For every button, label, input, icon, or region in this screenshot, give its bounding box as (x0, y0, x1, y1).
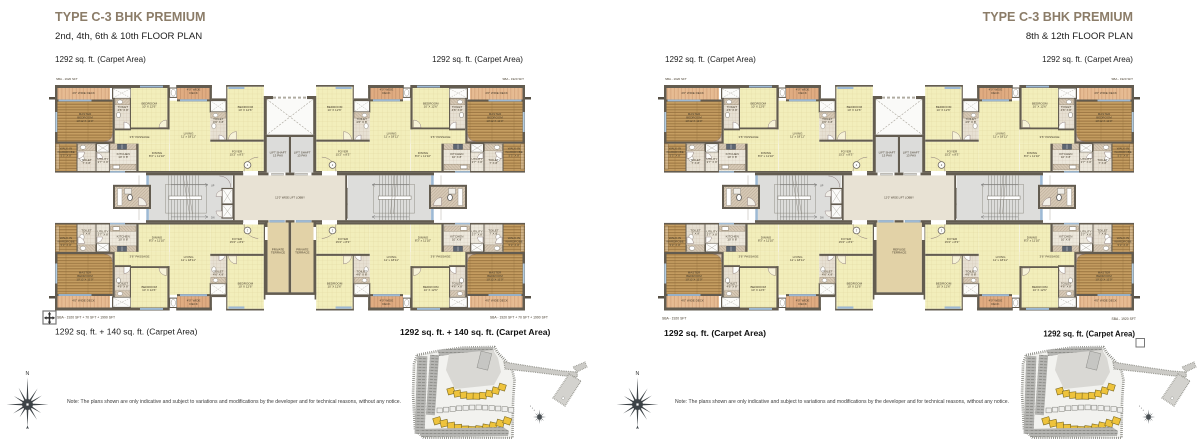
svg-text:13 PAX: 13 PAX (273, 154, 283, 158)
svg-text:1292 sq. ft. (Carpet Area): 1292 sq. ft. (Carpet Area) (1042, 55, 1133, 64)
svg-text:7' X 8': 7' X 8' (82, 161, 91, 165)
svg-text:11' x 18'11": 11' x 18'11" (384, 258, 399, 262)
svg-text:8'3" x 11'10": 8'3" x 11'10" (415, 239, 431, 243)
svg-text:DECK: DECK (798, 302, 806, 306)
svg-text:15'2" x 8'3": 15'2" x 8'3" (945, 153, 960, 157)
svg-text:8'3" x 11'10": 8'3" x 11'10" (1024, 154, 1040, 158)
svg-text:4'0" WIDE DECK: 4'0" WIDE DECK (72, 91, 95, 95)
svg-text:13 PAX: 13 PAX (906, 154, 916, 158)
svg-text:3'7" X 8': 3'7" X 8' (97, 160, 108, 164)
svg-text:15'2" x 8'3": 15'2" x 8'3" (230, 153, 245, 157)
svg-text:4'6" X 8': 4'6" X 8' (213, 120, 224, 124)
svg-text:SBA - 1920 SFT: SBA - 1920 SFT (502, 77, 524, 81)
svg-text:8'3" x 11'10": 8'3" x 11'10" (149, 239, 165, 243)
svg-text:15'2" x 8'3": 15'2" x 8'3" (839, 240, 854, 244)
svg-text:8'3" x 11'10": 8'3" x 11'10" (758, 239, 774, 243)
svg-text:3'6" PASSAGE: 3'6" PASSAGE (431, 255, 451, 259)
svg-text:10' X 12'6": 10' X 12'6" (424, 105, 438, 109)
svg-text:DECK: DECK (382, 302, 390, 306)
svg-text:10' X 12'6": 10' X 12'6" (1033, 105, 1047, 109)
svg-text:3'7" X 8': 3'7" X 8' (1081, 160, 1092, 164)
svg-text:10' X 8': 10' X 8' (1061, 155, 1071, 159)
svg-text:4'6" X 8': 4'6" X 8' (822, 273, 833, 277)
svg-text:4'0" WIDE DECK: 4'0" WIDE DECK (1094, 91, 1117, 95)
svg-text:8th & 12th FLOOR PLAN: 8th & 12th FLOOR PLAN (1026, 31, 1133, 42)
svg-text:DECK: DECK (382, 91, 390, 95)
svg-text:10' X 8': 10' X 8' (118, 155, 128, 159)
svg-text:TERRACE: TERRACE (271, 251, 285, 255)
svg-text:1292 sq. ft. (Carpet Area): 1292 sq. ft. (Carpet Area) (664, 328, 766, 338)
svg-text:3'6" PASSAGE: 3'6" PASSAGE (130, 135, 150, 139)
svg-text:3'6" PASSAGE: 3'6" PASSAGE (1040, 135, 1060, 139)
svg-text:10' X 12'6": 10' X 12'6" (238, 285, 252, 289)
svg-text:13 PAX: 13 PAX (297, 154, 307, 158)
svg-text:10'12 X 11'0": 10'12 X 11'0" (1095, 277, 1112, 281)
svg-text:10' X 12'6": 10' X 12'6" (751, 105, 765, 109)
svg-text:4'0" WIDE DECK: 4'0" WIDE DECK (681, 91, 704, 95)
svg-text:4'6" X 8': 4'6" X 8' (1061, 108, 1072, 112)
svg-text:11' x 18'11": 11' x 18'11" (790, 135, 805, 139)
svg-text:4'6" X 8': 4'6" X 8' (1061, 285, 1072, 289)
svg-text:1292 sq. ft. (Carpet Area): 1292 sq. ft. (Carpet Area) (55, 55, 146, 64)
svg-text:10' X 12'6": 10' X 12'6" (142, 288, 156, 292)
svg-text:SBA - 1920 SFT: SBA - 1920 SFT (662, 317, 687, 321)
svg-text:10'12 X 11'0": 10'12 X 11'0" (685, 119, 702, 123)
svg-text:3'6" PASSAGE: 3'6" PASSAGE (431, 135, 451, 139)
svg-text:7' X 8': 7' X 8' (691, 161, 700, 165)
svg-text:4'0" WIDE DECK: 4'0" WIDE DECK (485, 298, 508, 302)
svg-text:10'12 X 11'0": 10'12 X 11'0" (685, 277, 702, 281)
svg-text:10' X 12'6": 10' X 12'6" (238, 108, 252, 112)
svg-text:10'12 X 11'0": 10'12 X 11'0" (1095, 119, 1112, 123)
svg-text:2nd, 4th, 6th & 10th FLOOR PLA: 2nd, 4th, 6th & 10th FLOOR PLAN (55, 31, 202, 42)
svg-text:15'2" x 8'3": 15'2" x 8'3" (839, 153, 854, 157)
svg-text:SBA - 1920 SFT: SBA - 1920 SFT (1111, 77, 1133, 81)
svg-text:5'3" X 8': 5'3" X 8' (670, 153, 681, 157)
svg-text:4'6" X 8': 4'6" X 8' (452, 108, 463, 112)
svg-text:TYPE C-3 BHK PREMIUM: TYPE C-3 BHK PREMIUM (55, 10, 205, 24)
svg-text:5'3" X 8': 5'3" X 8' (509, 153, 520, 157)
svg-text:1292 sq. ft. + 140 sq. ft. (Ca: 1292 sq. ft. + 140 sq. ft. (Carpet Area) (55, 327, 198, 337)
svg-text:4'0" WIDE DECK: 4'0" WIDE DECK (1094, 298, 1117, 302)
svg-text:DECK: DECK (798, 91, 806, 95)
svg-text:10'12 X 11'0": 10'12 X 11'0" (486, 277, 503, 281)
svg-text:10' X 12'6": 10' X 12'6" (327, 108, 341, 112)
svg-text:11' x 18'11": 11' x 18'11" (993, 135, 1008, 139)
svg-text:4'6" X 8': 4'6" X 8' (213, 273, 224, 277)
svg-text:TERRACE: TERRACE (892, 251, 906, 255)
svg-text:11' x 18'11": 11' x 18'11" (384, 135, 399, 139)
svg-text:4'0" WIDE DECK: 4'0" WIDE DECK (72, 298, 95, 302)
svg-text:5'3" X 8': 5'3" X 8' (1118, 243, 1129, 247)
svg-text:11' x 18'11": 11' x 18'11" (181, 135, 196, 139)
svg-text:10' X 12'6": 10' X 12'6" (847, 285, 861, 289)
svg-text:15'2" x 8'3": 15'2" x 8'3" (945, 240, 960, 244)
svg-text:10'12 X 11'0": 10'12 X 11'0" (486, 119, 503, 123)
svg-text:DECK: DECK (991, 91, 999, 95)
svg-text:10'12 X 11'0": 10'12 X 11'0" (76, 119, 93, 123)
svg-text:7' X 8': 7' X 8' (1098, 232, 1107, 236)
svg-text:8'3" x 11'10": 8'3" x 11'10" (415, 154, 431, 158)
svg-text:10'12 X 11'0": 10'12 X 11'0" (76, 277, 93, 281)
svg-text:1292 sq. ft. (Carpet Area): 1292 sq. ft. (Carpet Area) (665, 55, 756, 64)
svg-text:4'6" X 8': 4'6" X 8' (965, 120, 976, 124)
svg-text:1292 sq. ft. (Carpet Area): 1292 sq. ft. (Carpet Area) (1043, 330, 1135, 339)
svg-text:5'3" X 8': 5'3" X 8' (670, 243, 681, 247)
svg-text:SBA - 1920 SFT: SBA - 1920 SFT (665, 77, 687, 81)
svg-text:10' X 8': 10' X 8' (1061, 238, 1071, 242)
svg-text:3'7" X 8': 3'7" X 8' (97, 233, 108, 237)
svg-text:8'3" x 11'10": 8'3" x 11'10" (758, 154, 774, 158)
svg-text:4'0" WIDE DECK: 4'0" WIDE DECK (681, 298, 704, 302)
svg-text:SBA - 1920 SFT: SBA - 1920 SFT (56, 77, 78, 81)
svg-text:1292 sq. ft. + 140 sq. ft. (Ca: 1292 sq. ft. + 140 sq. ft. (Carpet Area) (400, 327, 551, 337)
svg-text:3'7" X 8': 3'7" X 8' (706, 160, 717, 164)
svg-text:5'3" X 8': 5'3" X 8' (1118, 153, 1129, 157)
svg-text:13 PAX: 13 PAX (882, 154, 892, 158)
svg-text:3'6" PASSAGE: 3'6" PASSAGE (739, 135, 759, 139)
svg-text:15'2" x 8'3": 15'2" x 8'3" (230, 240, 245, 244)
svg-text:8'3" x 11'10": 8'3" x 11'10" (1024, 239, 1040, 243)
svg-text:3'6" PASSAGE: 3'6" PASSAGE (130, 255, 150, 259)
svg-text:10' X 12'6": 10' X 12'6" (847, 108, 861, 112)
svg-text:10' X 8': 10' X 8' (727, 238, 737, 242)
svg-text:12’0" WIDE LIFT LOBBY: 12’0" WIDE LIFT LOBBY (884, 196, 914, 200)
svg-text:4'6" X 8': 4'6" X 8' (965, 273, 976, 277)
svg-text:10' X 12'6": 10' X 12'6" (142, 105, 156, 109)
svg-text:10' X 12'6": 10' X 12'6" (751, 288, 765, 292)
svg-text:11' x 18'11": 11' x 18'11" (181, 258, 196, 262)
svg-text:10' X 12'6": 10' X 12'6" (424, 288, 438, 292)
svg-text:SBA - 1920 SFT + 70 SFT + 1990: SBA - 1920 SFT + 70 SFT + 1990 SFT (57, 316, 115, 320)
svg-text:4'6" X 8': 4'6" X 8' (356, 120, 367, 124)
svg-text:12’0" WIDE LIFT LOBBY: 12’0" WIDE LIFT LOBBY (275, 196, 305, 200)
svg-text:8'3" x 11'10": 8'3" x 11'10" (149, 154, 165, 158)
svg-text:11' x 18'11": 11' x 18'11" (790, 258, 805, 262)
svg-text:5'3" X 8': 5'3" X 8' (61, 243, 72, 247)
svg-text:4'6" X 8': 4'6" X 8' (726, 108, 737, 112)
svg-text:7' X 8': 7' X 8' (489, 161, 498, 165)
svg-text:10' X 8': 10' X 8' (118, 238, 128, 242)
svg-text:10' X 8': 10' X 8' (452, 155, 462, 159)
svg-text:3'6" PASSAGE: 3'6" PASSAGE (739, 255, 759, 259)
svg-text:10' X 12'6": 10' X 12'6" (936, 108, 950, 112)
svg-text:5'3" X 8': 5'3" X 8' (61, 153, 72, 157)
svg-text:4'6" X 8': 4'6" X 8' (822, 120, 833, 124)
svg-text:15'2" x 8'3": 15'2" x 8'3" (336, 153, 351, 157)
svg-text:4'6" X 8': 4'6" X 8' (356, 273, 367, 277)
svg-text:15'2" x 8'3": 15'2" x 8'3" (336, 240, 351, 244)
svg-text:3'6" PASSAGE: 3'6" PASSAGE (1040, 255, 1060, 259)
svg-text:7' X 8': 7' X 8' (1098, 161, 1107, 165)
svg-text:4'0" WIDE DECK: 4'0" WIDE DECK (485, 91, 508, 95)
svg-text:10' X 12'6": 10' X 12'6" (1033, 288, 1047, 292)
svg-text:10' X 12'6": 10' X 12'6" (936, 285, 950, 289)
svg-text:4'6" X 8': 4'6" X 8' (117, 108, 128, 112)
svg-text:3'7" X 8': 3'7" X 8' (472, 160, 483, 164)
svg-text:3'7" X 8': 3'7" X 8' (706, 233, 717, 237)
svg-text:Note: The plans shown are only: Note: The plans shown are only indicativ… (675, 399, 1009, 405)
svg-text:7' X 8': 7' X 8' (691, 232, 700, 236)
svg-text:1292 sq. ft. (Carpet Area): 1292 sq. ft. (Carpet Area) (432, 55, 523, 64)
svg-text:TERRACE: TERRACE (295, 251, 309, 255)
svg-text:4'6" X 8': 4'6" X 8' (117, 285, 128, 289)
svg-text:DECK: DECK (189, 302, 197, 306)
svg-text:5'3" X 8': 5'3" X 8' (509, 243, 520, 247)
svg-text:10' X 8': 10' X 8' (727, 155, 737, 159)
svg-text:3'7" X 8': 3'7" X 8' (1081, 233, 1092, 237)
svg-text:7' X 8': 7' X 8' (82, 232, 91, 236)
svg-text:SBA - 1920 SFT: SBA - 1920 SFT (1112, 317, 1137, 321)
svg-text:Note: The plans shown are only: Note: The plans shown are only indicativ… (67, 399, 401, 405)
svg-text:11' x 18'11": 11' x 18'11" (993, 258, 1008, 262)
svg-text:10' X 12'6": 10' X 12'6" (327, 285, 341, 289)
svg-text:DECK: DECK (991, 302, 999, 306)
svg-text:7' X 8': 7' X 8' (489, 232, 498, 236)
svg-text:4'6" X 8': 4'6" X 8' (726, 285, 737, 289)
svg-text:DECK: DECK (189, 91, 197, 95)
svg-text:SBA - 1920 SFT + 70 SFT + 1990: SBA - 1920 SFT + 70 SFT + 1990 SFT (490, 316, 548, 320)
svg-text:TYPE C-3 BHK PREMIUM: TYPE C-3 BHK PREMIUM (983, 10, 1133, 24)
svg-text:10' X 8': 10' X 8' (452, 238, 462, 242)
svg-text:3'7" X 8': 3'7" X 8' (472, 233, 483, 237)
svg-text:4'6" X 8': 4'6" X 8' (452, 285, 463, 289)
